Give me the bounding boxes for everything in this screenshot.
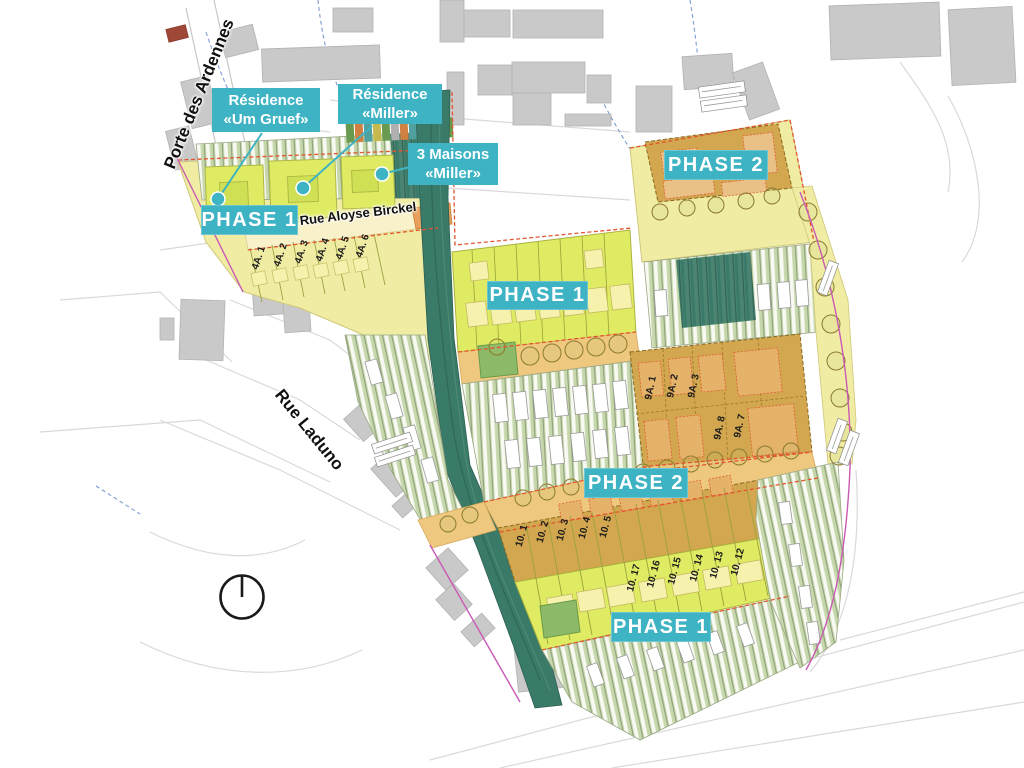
callout-3-maisons-miller: 3 Maisons «Miller»	[408, 143, 498, 185]
site-plan-canvas	[0, 0, 1024, 768]
callout-text: «Um Gruef»	[223, 110, 308, 130]
callout-text: «Miller»	[362, 104, 418, 124]
callout-residence-um-gruef: Résidence «Um Gruef»	[212, 88, 320, 132]
phase-label-south: PHASE 1	[611, 612, 711, 642]
callout-residence-miller: Résidence «Miller»	[338, 84, 442, 124]
phase-label-mid: PHASE 2	[584, 468, 688, 498]
callout-dot-maisons-miller	[375, 167, 389, 181]
phase-label-northeast: PHASE 2	[664, 150, 768, 180]
callout-text: «Miller»	[425, 164, 481, 184]
phase-label-center: PHASE 1	[487, 281, 588, 310]
zone-center-phase1	[452, 230, 650, 502]
callout-text: 3 Maisons	[417, 145, 490, 165]
site-plan: Porte des Ardennes Rue Aloyse Birckel Ru…	[0, 0, 1024, 768]
callout-dot-um-gruef	[211, 192, 225, 206]
phase-label-northwest: PHASE 1	[201, 205, 298, 235]
callout-dot-miller	[296, 181, 310, 195]
callout-text: Résidence	[228, 91, 303, 111]
callout-text: Résidence	[352, 85, 427, 105]
